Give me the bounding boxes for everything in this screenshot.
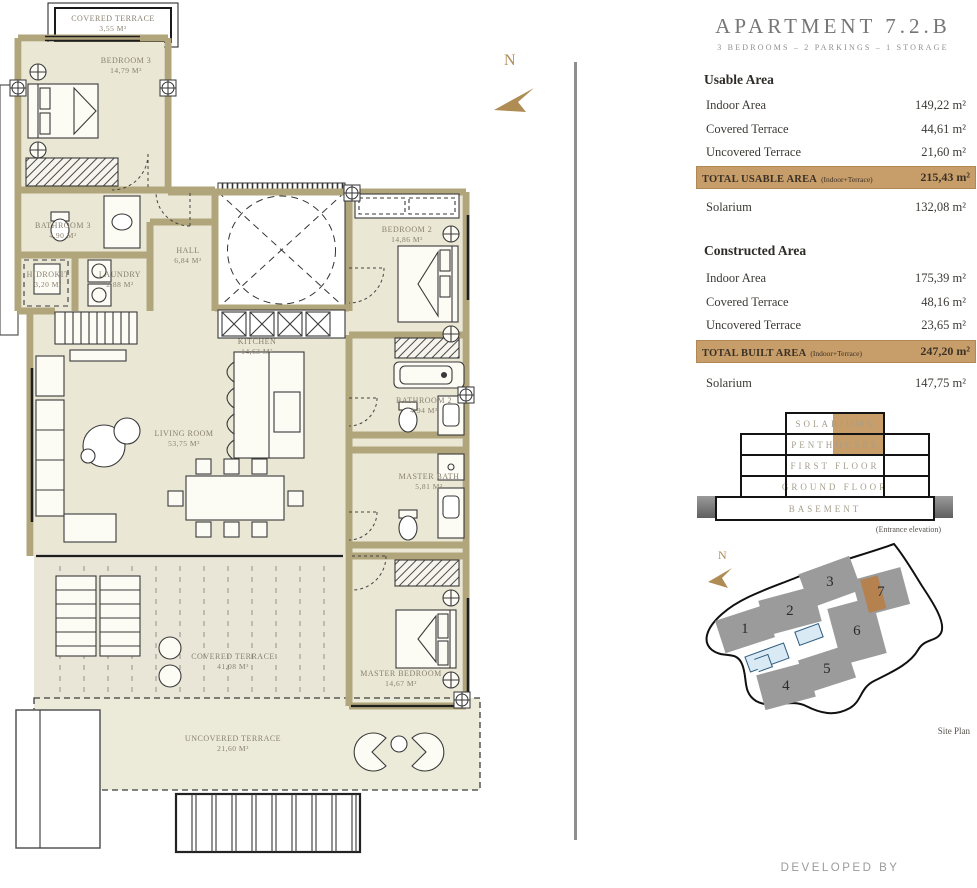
elevation-divider-line — [785, 433, 787, 498]
patio-skylight — [218, 183, 345, 308]
nightstand-icon — [443, 226, 459, 242]
vertical-divider — [574, 62, 577, 840]
entrance-elevation-diagram: SOLARIUMS PENTHOUSES FIRST FLOOR GROUND … — [715, 412, 935, 552]
usable-area-heading: Usable Area — [704, 72, 774, 88]
site-north-arrow-icon — [708, 568, 732, 588]
north-arrow-icon — [492, 70, 536, 112]
floor-penthouses: PENTHOUSES — [740, 433, 930, 456]
constructed-area-heading: Constructed Area — [704, 243, 806, 259]
north-arrow: N — [492, 52, 538, 112]
ground-shading — [697, 496, 715, 518]
floor-first: FIRST FLOOR — [740, 454, 930, 477]
site-plan: N 1 2 3 4 5 6 7 Site Plan — [698, 538, 970, 743]
solarium-row: Solarium147,75 m² — [706, 376, 966, 391]
nightstand-icon — [443, 672, 459, 688]
brochure-page: COVERED TERRACE3,55 m² BEDROOM 314,79 m²… — [0, 0, 977, 888]
floor-solariums: SOLARIUMS — [785, 412, 885, 435]
usable-row: Uncovered Terrace21,60 m² — [706, 145, 966, 160]
elevation-divider-line — [883, 433, 885, 498]
constructed-row: Uncovered Terrace23,65 m² — [706, 318, 966, 333]
ground-shading — [935, 496, 953, 518]
usable-row: Indoor Area149,22 m² — [706, 98, 966, 113]
constructed-row: Covered Terrace48,16 m² — [706, 295, 966, 310]
floor-plan-drawing — [0, 0, 560, 888]
site-north-label: N — [718, 548, 727, 563]
floor-basement: BASEMENT — [715, 496, 935, 521]
solarium-row: Solarium132,08 m² — [706, 200, 966, 215]
apartment-subtitle: 3 BEDROOMS – 2 PARKINGS – 1 STORAGE — [694, 43, 972, 52]
elevation-caption: (Entrance elevation) — [876, 525, 941, 534]
nightstand-icon — [443, 590, 459, 606]
north-label: N — [504, 52, 538, 70]
floor-ground: GROUND FLOOR — [740, 475, 930, 498]
constructed-row: Indoor Area175,39 m² — [706, 271, 966, 286]
total-usable-area-bar: TOTAL USABLE AREA (Indoor+Terrace) 215,4… — [696, 166, 976, 189]
apartment-title: APARTMENT 7.2.B — [694, 14, 972, 39]
usable-row: Covered Terrace44,61 m² — [706, 122, 966, 137]
nightstand-icon — [30, 64, 46, 80]
developed-by-text: DEVELOPED BY — [760, 862, 920, 874]
nightstand-icon — [30, 142, 46, 158]
nightstand-icon — [443, 326, 459, 342]
total-built-area-bar: TOTAL BUILT AREA (Indoor+Terrace) 247,20… — [696, 340, 976, 363]
